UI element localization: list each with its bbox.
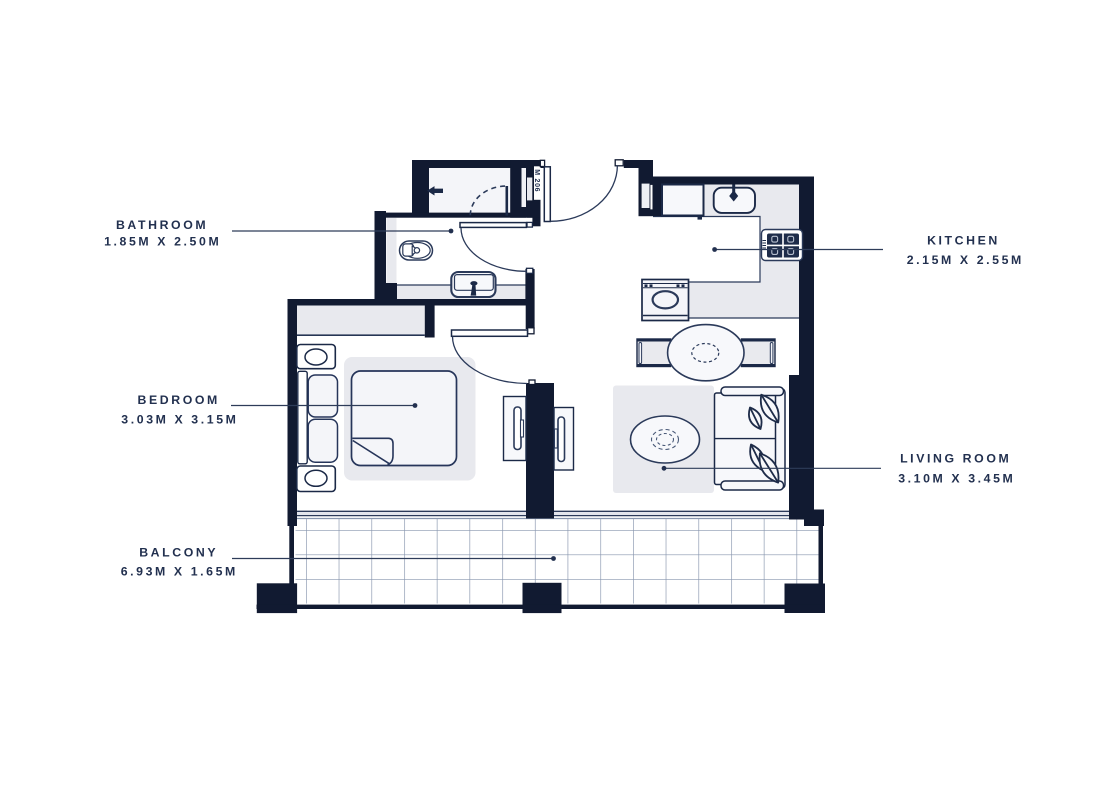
svg-text:3.03M X 3.15M: 3.03M X 3.15M <box>121 413 238 427</box>
svg-text:KITCHEN: KITCHEN <box>927 234 1000 248</box>
svg-text:BEDROOM: BEDROOM <box>137 393 219 407</box>
svg-text:6.93M X 1.65M: 6.93M X 1.65M <box>121 564 238 578</box>
svg-text:BATHROOM: BATHROOM <box>116 218 208 232</box>
svg-text:LIVING ROOM: LIVING ROOM <box>900 452 1011 466</box>
svg-text:3.10M X 3.45M: 3.10M X 3.45M <box>898 472 1015 486</box>
svg-text:1.85M X 2.50M: 1.85M X 2.50M <box>104 235 221 249</box>
svg-text:2.15M X 2.55M: 2.15M X 2.55M <box>907 253 1024 267</box>
svg-text:M 206: M 206 <box>533 169 540 192</box>
svg-text:BALCONY: BALCONY <box>139 545 218 559</box>
